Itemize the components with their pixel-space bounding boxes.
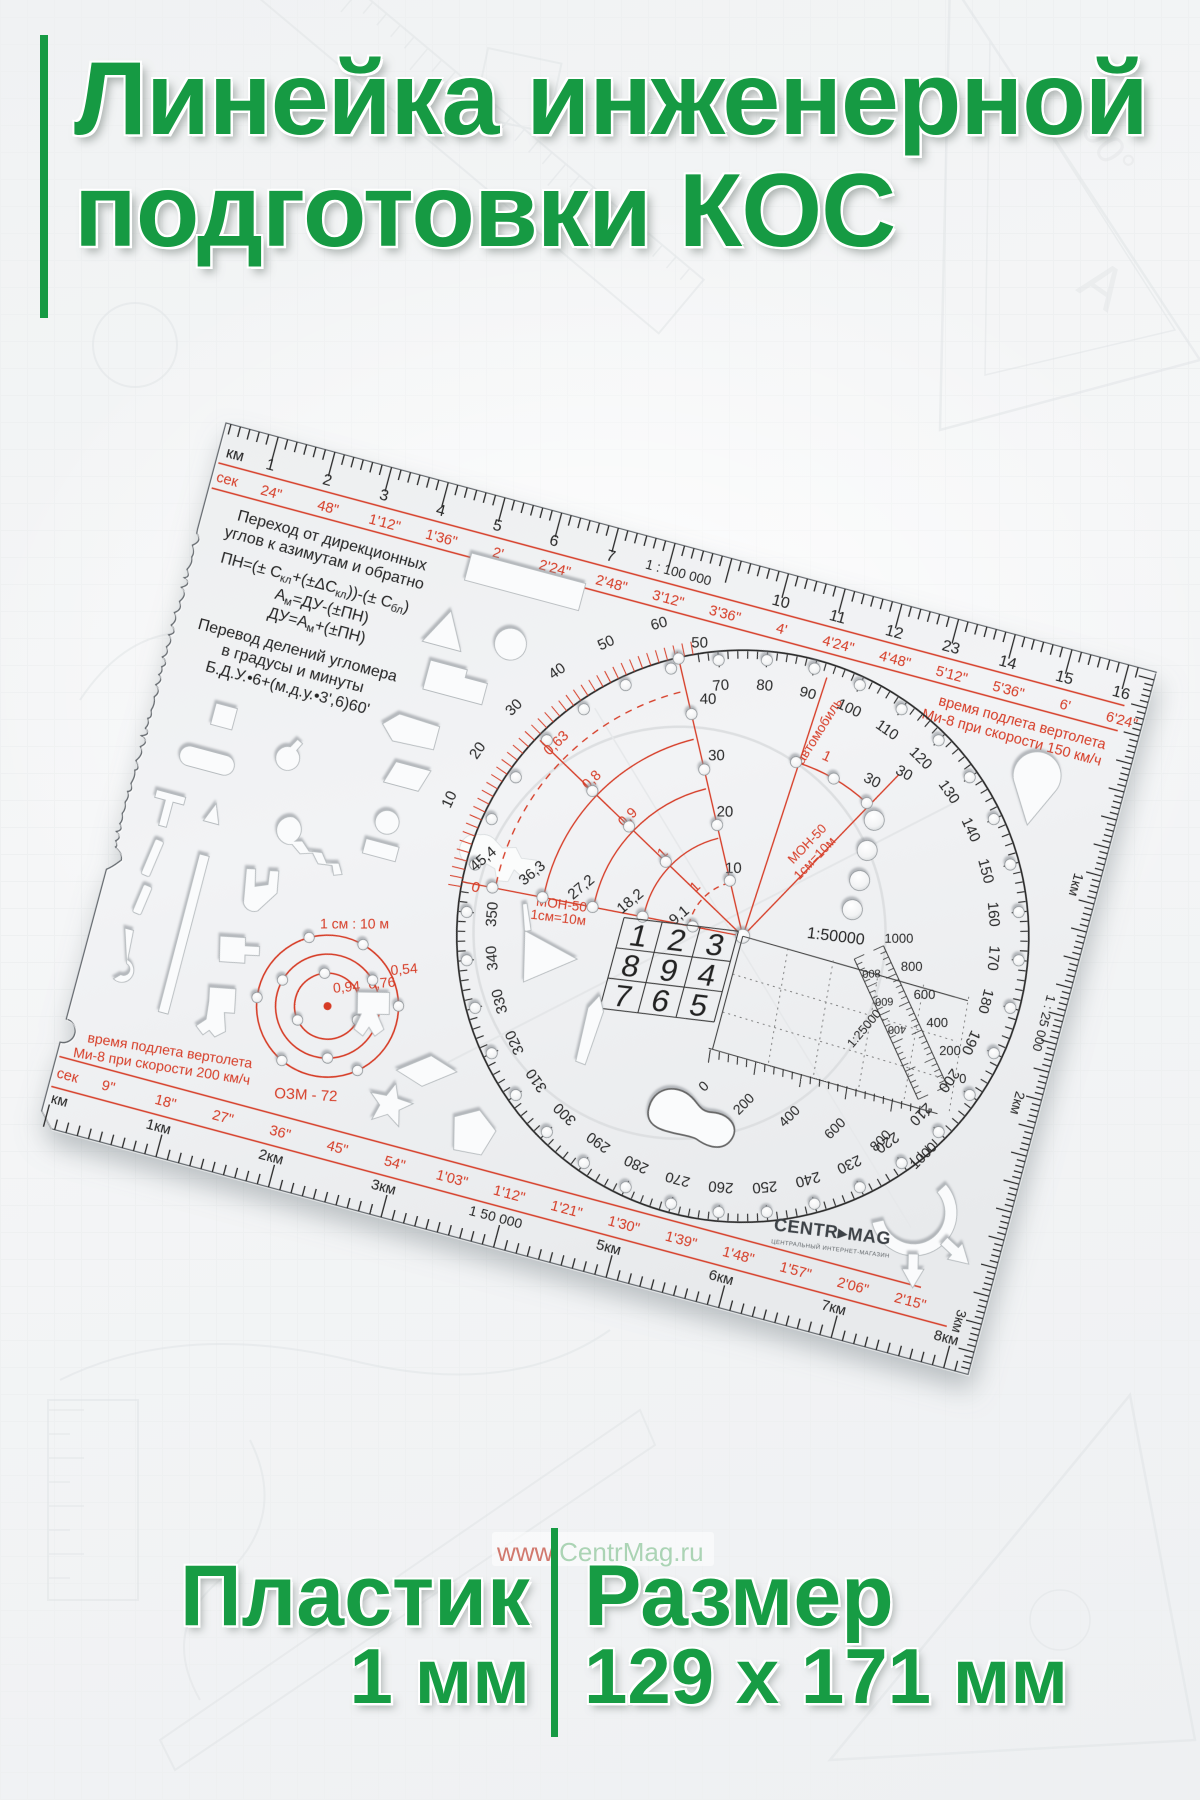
svg-text:400: 400	[888, 1023, 907, 1036]
svg-text:350: 350	[483, 901, 502, 927]
svg-text:800: 800	[862, 967, 881, 980]
svg-text:250: 250	[752, 1177, 778, 1196]
svg-text:600: 600	[875, 995, 894, 1008]
svg-text:400: 400	[926, 1015, 948, 1030]
svg-text:800: 800	[901, 959, 923, 974]
svg-text:600: 600	[914, 987, 936, 1002]
svg-text:0: 0	[959, 1071, 966, 1086]
svg-text:10: 10	[725, 860, 742, 877]
svg-text:1000: 1000	[884, 931, 913, 946]
svg-text:160: 160	[984, 901, 1003, 927]
svg-text:1 см : 10 м: 1 см : 10 м	[320, 915, 389, 931]
svg-text:40: 40	[700, 691, 717, 708]
svg-text:340: 340	[483, 945, 502, 971]
svg-text:170: 170	[984, 945, 1003, 971]
svg-text:30: 30	[708, 747, 725, 764]
svg-text:200: 200	[939, 1043, 961, 1058]
svg-text:0,54: 0,54	[390, 960, 419, 978]
svg-text:50: 50	[691, 634, 708, 651]
svg-text:20: 20	[717, 804, 734, 821]
svg-text:ОЗМ - 72: ОЗМ - 72	[274, 1085, 338, 1105]
svg-text:80: 80	[756, 677, 774, 695]
svg-text:0,94: 0,94	[332, 978, 361, 996]
svg-text:260: 260	[708, 1177, 734, 1196]
